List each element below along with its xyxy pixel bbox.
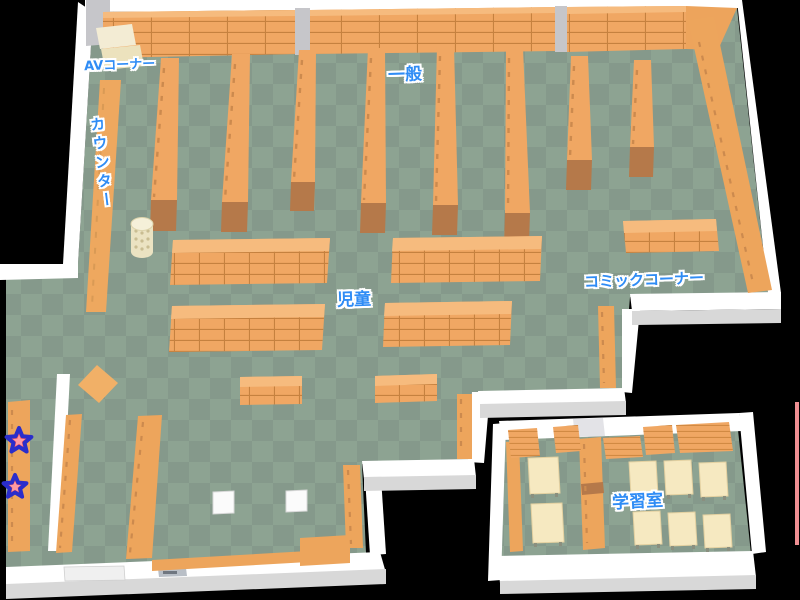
table-leg: [723, 496, 726, 500]
floor-fixture: [286, 490, 307, 512]
study-table: [528, 457, 560, 494]
table-leg: [688, 494, 691, 498]
aisle-bookshelf: [630, 60, 654, 147]
kids-bookshelf-grid: [170, 251, 329, 285]
study-table: [668, 512, 697, 546]
study-shelf-slats: [643, 425, 675, 455]
table-leg: [702, 497, 705, 501]
aisle-bookshelf: [433, 46, 458, 205]
aisle-bookshelf-end: [566, 160, 592, 190]
kids-bookshelf-grid: [383, 314, 511, 347]
table-leg: [559, 542, 562, 546]
kids-bookshelf-grid: [240, 386, 302, 405]
study-table: [531, 503, 564, 543]
table-leg: [531, 494, 534, 498]
shelf-top-edge: [384, 301, 512, 316]
area-label-children: 児童: [337, 284, 372, 310]
wall-bookshelf: [457, 394, 472, 459]
kids-bookshelf-grid: [624, 231, 719, 253]
rack-dot: [134, 245, 137, 248]
study-shelf-slats: [553, 425, 581, 453]
entrance-door: [64, 566, 125, 581]
aisle-bookshelf-end: [150, 200, 177, 231]
table-leg: [555, 493, 558, 497]
kids-bookshelf-grid: [169, 317, 324, 352]
library-floor-map: AVコーナー 一般 カウンター 児童 コミックコーナー 学習室: [0, 0, 800, 600]
table-leg: [727, 547, 730, 551]
west-jog-wall: [0, 264, 78, 280]
aisle-bookshelf: [567, 56, 592, 160]
study-shelf-slats: [603, 436, 643, 459]
study-table: [703, 514, 732, 548]
floor-map-canvas: [0, 0, 800, 600]
rack-dot: [146, 237, 149, 240]
shelf-top-edge: [392, 236, 542, 251]
study-shelf-slats: [508, 428, 540, 458]
table-leg: [534, 543, 537, 547]
aisle-bookshelf-end: [629, 147, 654, 177]
shelf-top-edge: [240, 376, 302, 387]
study-table: [699, 462, 728, 497]
shelf-top-edge: [171, 304, 325, 319]
comic-step-wall: [630, 292, 781, 311]
marker-bookshelf: [8, 400, 30, 552]
shelf-top-edge: [172, 238, 330, 253]
wall-shadow: [632, 309, 781, 325]
comic-wall-bookshelf: [598, 306, 616, 388]
study-table: [633, 511, 662, 545]
area-label-study-room: 学習室: [611, 486, 663, 514]
pillar: [295, 8, 310, 55]
aisle-bookshelf-end: [360, 203, 386, 233]
map-edge-line: [795, 402, 799, 545]
low-wall-shelf: [300, 535, 350, 566]
table-leg: [657, 544, 660, 548]
wall-shadow: [364, 475, 476, 491]
rack-dot: [140, 231, 143, 234]
rack-dot: [140, 247, 143, 250]
door-handle-mark: [163, 571, 177, 574]
aisle-bookshelf-end: [290, 182, 315, 211]
table-leg: [671, 546, 674, 550]
kids-bookshelf-grid: [375, 384, 437, 403]
study-table: [664, 460, 693, 495]
table-leg: [667, 495, 670, 499]
aisle-bookshelf-end: [221, 202, 248, 232]
aisle-bookshelf-end: [432, 205, 458, 235]
rack-dot: [134, 237, 137, 240]
kids-bookshelf-grid: [391, 249, 541, 283]
table-leg: [636, 545, 639, 549]
area-label-general: 一般: [388, 59, 423, 85]
floor-fixture: [213, 491, 234, 514]
rotating-rack-top: [131, 218, 153, 231]
av-cabinet: [96, 24, 136, 49]
rack-dot: [140, 239, 143, 242]
rack-dot: [146, 245, 149, 248]
pillar: [555, 6, 567, 52]
area-label-av-corner: AVコーナー: [84, 53, 156, 74]
shelf-top-edge: [375, 374, 437, 386]
study-shelf-slats: [676, 422, 733, 453]
shelf-top-edge: [623, 219, 717, 233]
table-leg: [692, 545, 695, 549]
table-leg: [706, 548, 709, 552]
area-label-comic-corner: コミックコーナー: [584, 267, 705, 292]
